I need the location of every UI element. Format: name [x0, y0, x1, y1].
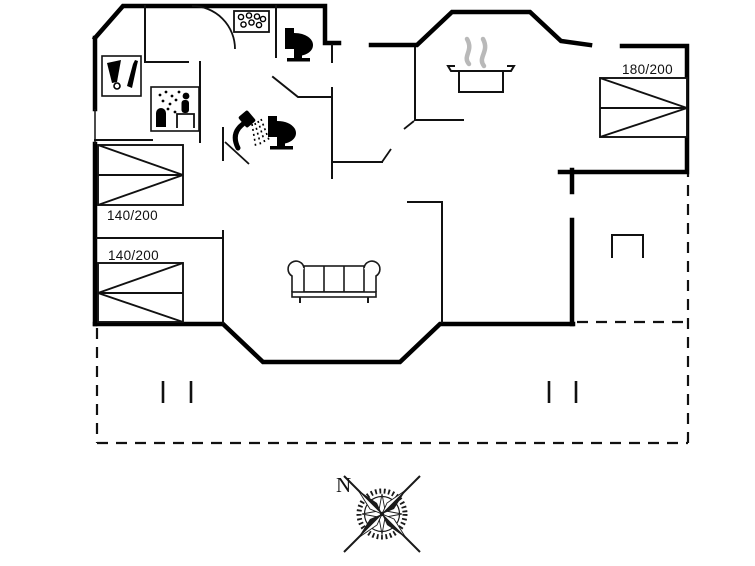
bed-right-label: 180/200 [622, 62, 673, 77]
north-label: N [336, 473, 351, 497]
steam-wisp [482, 39, 485, 66]
bed-right [600, 78, 687, 137]
toilet-icon-bathroom-2 [268, 116, 296, 150]
sauna-icon [151, 87, 199, 131]
floor-plan-page: 140/200 140/200 180/200 [0, 0, 755, 566]
steam-wisp [467, 39, 470, 64]
terrace-outline [97, 174, 688, 443]
cooking-pot-icon [448, 39, 514, 92]
sofa-icon [288, 261, 380, 303]
toilet-icon-bathroom-1 [285, 28, 313, 62]
bed-left-upper [98, 145, 183, 205]
bed-left-upper-label: 140/200 [107, 208, 158, 223]
door-arc [192, 6, 235, 49]
whirlpool-tub-icon [234, 11, 269, 32]
bed-left-lower [98, 263, 183, 322]
floor-plan-svg: 140/200 140/200 180/200 [0, 0, 755, 566]
bed-left-lower-label: 140/200 [108, 248, 159, 263]
wine-bottle-glass-icon [102, 56, 141, 96]
compass-rose-icon: N [336, 473, 420, 552]
shower-icon [235, 110, 269, 148]
terrace-posts [163, 381, 576, 403]
door-leaves [225, 121, 414, 164]
